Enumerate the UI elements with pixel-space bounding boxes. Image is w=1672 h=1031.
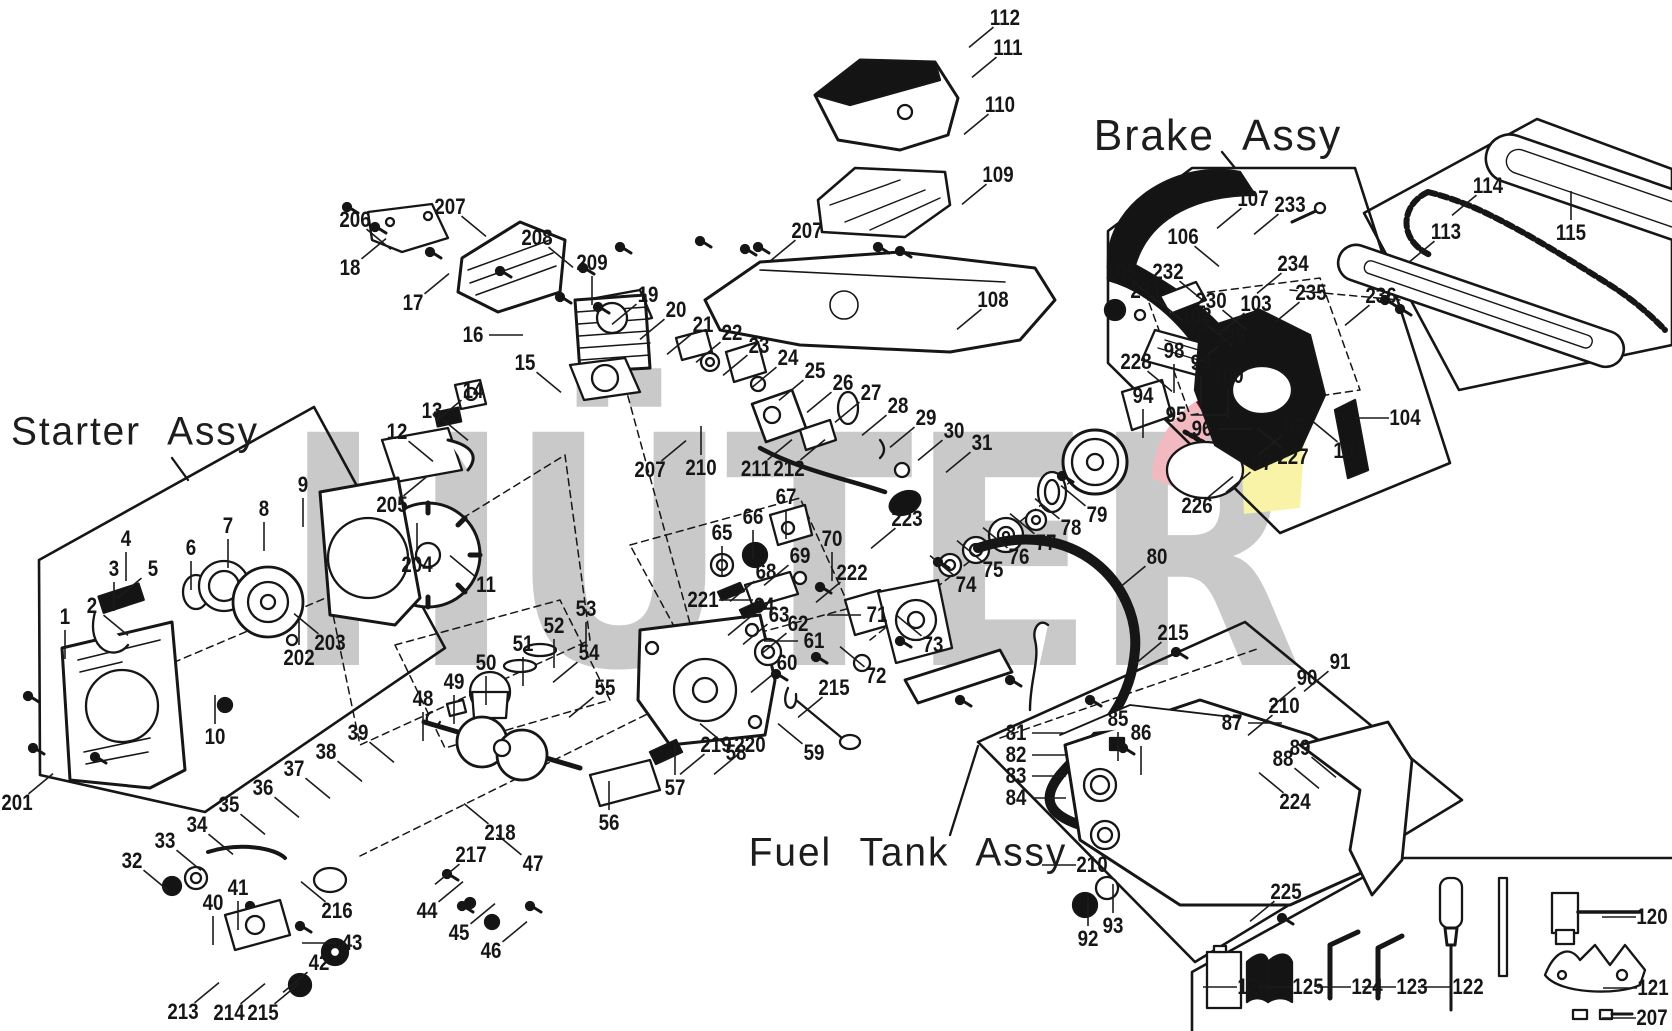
fuel-hose bbox=[760, 440, 924, 520]
leader-line bbox=[195, 983, 219, 1003]
leader-line bbox=[306, 778, 330, 798]
leader-line bbox=[969, 27, 993, 47]
leader-line bbox=[435, 864, 459, 884]
leader-line bbox=[871, 528, 895, 548]
leader-line bbox=[798, 697, 822, 717]
leader-line bbox=[918, 440, 942, 460]
leader-line bbox=[275, 797, 299, 817]
piston-group bbox=[427, 644, 556, 726]
leader-line bbox=[464, 804, 488, 824]
leader-line bbox=[807, 392, 831, 412]
engine-top-housing bbox=[705, 252, 1055, 352]
leader-line bbox=[503, 922, 527, 942]
leader-line bbox=[1275, 302, 1299, 322]
leader-line bbox=[714, 754, 738, 774]
leader-line bbox=[241, 814, 265, 834]
fuel-tank bbox=[1030, 623, 1412, 917]
carburetor bbox=[676, 330, 858, 450]
leader-line bbox=[778, 724, 802, 744]
ignition-coil bbox=[382, 380, 486, 482]
leader-line bbox=[964, 114, 988, 134]
leader-line bbox=[425, 274, 449, 294]
leader-line bbox=[1121, 566, 1145, 586]
leader-line bbox=[1345, 305, 1369, 325]
leader-line bbox=[439, 882, 463, 902]
leader-line bbox=[29, 774, 53, 794]
leader-line bbox=[680, 754, 704, 774]
leader-line bbox=[569, 697, 593, 717]
handle-bar bbox=[905, 650, 1012, 703]
leader-line bbox=[553, 662, 577, 682]
leader-line bbox=[241, 984, 265, 1004]
leader-line bbox=[497, 835, 521, 855]
leader-line bbox=[537, 372, 561, 392]
leader-line bbox=[462, 216, 486, 236]
leader-line bbox=[771, 240, 795, 260]
leader-line bbox=[1257, 273, 1281, 293]
brake-cover bbox=[1195, 310, 1325, 470]
leader-line bbox=[890, 427, 914, 447]
leader-line bbox=[1195, 246, 1219, 266]
leader-line bbox=[962, 184, 986, 204]
diagram-artwork bbox=[0, 0, 1672, 1031]
leader-line bbox=[1313, 422, 1337, 442]
leader-line bbox=[1217, 208, 1241, 228]
leader-line bbox=[338, 761, 362, 781]
leader-line bbox=[1254, 214, 1278, 234]
leader-line bbox=[1137, 642, 1161, 662]
air-filter bbox=[818, 168, 950, 237]
air-filter-cover bbox=[815, 60, 958, 150]
leader-line bbox=[662, 441, 686, 461]
leader-line bbox=[370, 742, 394, 762]
leader-line bbox=[862, 415, 886, 435]
leader-line bbox=[946, 452, 970, 472]
leader-line bbox=[972, 57, 996, 77]
leader-line bbox=[177, 850, 201, 870]
exploded-parts-diagram: HÜTER bbox=[0, 0, 1672, 1031]
crankshaft bbox=[424, 717, 580, 780]
leader-line bbox=[1271, 687, 1295, 707]
leader-line bbox=[294, 614, 318, 634]
